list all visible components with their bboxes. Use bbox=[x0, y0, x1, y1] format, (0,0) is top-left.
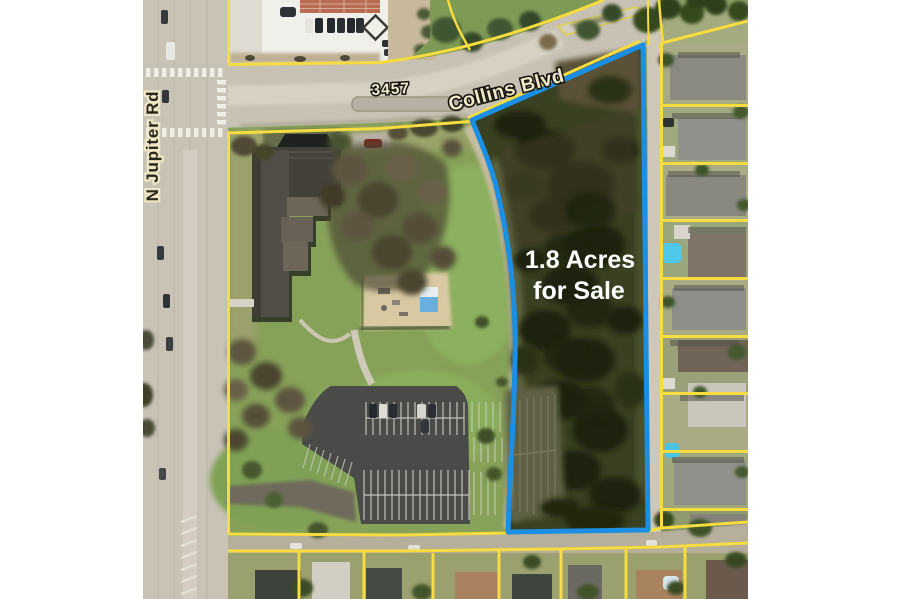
svg-text:1.8 Acres: 1.8 Acres bbox=[525, 246, 635, 274]
svg-text:N Jupiter Rd: N Jupiter Rd bbox=[143, 91, 162, 202]
svg-text:3457: 3457 bbox=[371, 80, 410, 99]
svg-text:for Sale: for Sale bbox=[533, 277, 625, 305]
